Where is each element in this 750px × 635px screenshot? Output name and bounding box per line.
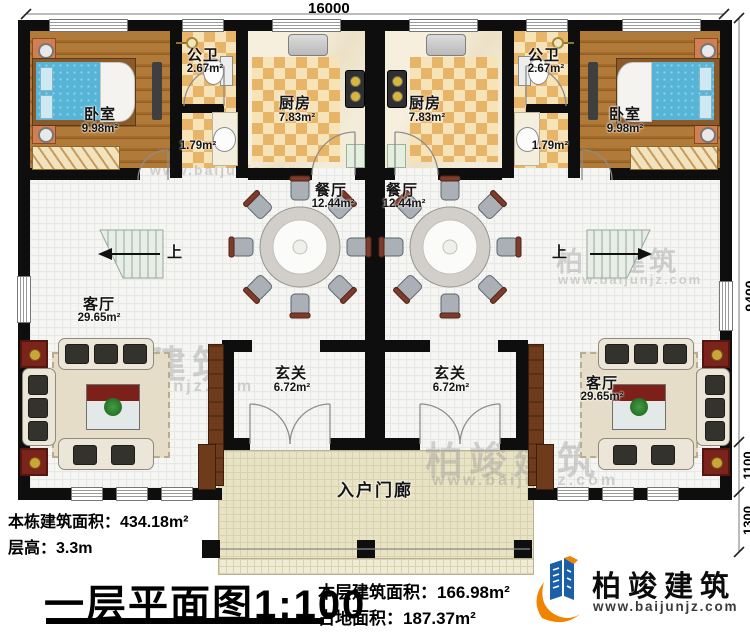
sofa [696,368,730,446]
window [183,20,223,31]
room-label-dining: 餐厅 [386,183,418,198]
room-area-bedroom: 9.98m² [82,124,118,136]
nightstand [32,38,56,60]
wall [170,31,182,178]
lamp-icon [38,127,54,143]
land-area-label: 占地面积： [318,609,403,628]
brand-logo-icon [530,556,588,626]
pillow [699,95,712,119]
room-label-foyer: 玄关 [434,366,466,381]
window [273,20,340,31]
wall [385,340,430,352]
plant-icon [29,457,41,469]
wall [516,340,528,450]
window [720,282,732,330]
lamp-icon [700,127,716,143]
window [410,20,477,31]
fridge [346,144,365,168]
porch-label: 入户门廊 [337,482,413,499]
land-area-line: 占地面积：187.37m² [318,604,476,629]
coffee-table [86,384,140,430]
wall [330,438,420,450]
porch-floor [218,450,534,560]
room-label-living: 客厅 [83,297,115,312]
lamp-icon [700,43,716,59]
side-table [702,448,730,476]
lamp-icon [38,43,54,59]
dimension-right-depth: 9400 [742,274,750,318]
floor-plan-page: 柏竣建筑 www.baijunjz.com 柏竣建筑 www.baijunjz.… [0,0,750,635]
plant-icon [711,349,723,361]
fridge [387,144,406,168]
room-area-foyer: 6.72m² [433,383,469,395]
room-label-bath: 公卫 [187,48,219,63]
window [623,20,700,31]
sofa [58,438,154,470]
room-area-bath: 2.67m² [187,64,223,76]
window [527,20,567,31]
window [117,488,147,500]
porch-column [357,540,375,558]
kitchen-sink [288,34,328,56]
room-label-bath: 公卫 [528,48,560,63]
room-label-bedroom: 卧室 [84,107,116,122]
dimension-right-foyer: 1100 [741,446,750,486]
room-area-wash: 1.79m² [180,141,216,153]
sofa [598,338,694,370]
room-label-dining: 餐厅 [315,183,347,198]
wall [502,31,514,178]
side-table [20,448,48,476]
room-area-bedroom: 9.98m² [607,124,643,136]
stairs-up-label: 上 [167,245,183,260]
building-area-label: 本栋建筑面积： [8,514,120,531]
window [603,488,633,500]
room-area-bath: 2.67m² [528,64,564,76]
room-area-dining: 12.44m² [312,199,355,211]
pillow [699,67,712,91]
land-area-value: 187.37m² [403,609,476,628]
stove [345,70,365,108]
dimension-right-porch: 1300 [741,501,750,541]
window [18,277,30,322]
room-label-foyer: 玄关 [275,366,307,381]
floor-height-label: 层高： [8,540,56,557]
window [72,488,102,500]
wardrobe [630,146,718,170]
room-label-kitchen: 厨房 [409,96,441,111]
pillow [40,67,53,91]
side-table [702,340,730,368]
kitchen-sink [426,34,466,56]
plant-icon [104,398,122,416]
side-table [20,340,48,368]
floor-height-line: 层高：3.3m [8,534,92,558]
wall [320,340,365,352]
window [50,20,127,31]
stove [387,70,407,108]
sofa [598,438,694,470]
floor-area-line: 本层建筑面积：166.98m² [318,578,510,603]
porch-column [202,540,220,558]
room-area-kitchen: 7.83m² [409,113,445,125]
side-door-panel [536,444,554,490]
wall [385,168,395,180]
title-underline [46,618,324,624]
floor-height-value: 3.3m [56,540,92,557]
nightstand [694,38,718,60]
wall-central [365,20,385,450]
porch-column [514,540,532,558]
plant-icon [29,349,41,361]
room-label-bedroom: 卧室 [609,107,641,122]
window [162,488,192,500]
window [648,488,678,500]
floor-area-label: 本层建筑面积： [318,583,437,602]
wall [568,31,580,178]
room-label-living: 客厅 [586,376,618,391]
sofa [58,338,154,370]
tv-panel [152,62,162,120]
room-area-foyer: 6.72m² [274,383,310,395]
room-label-kitchen: 厨房 [279,96,311,111]
tv-panel [588,62,598,120]
room-area-kitchen: 7.83m² [279,113,315,125]
room-area-dining: 12.44m² [383,199,426,211]
sofa [22,368,56,446]
stairs-up-label: 上 [552,245,568,260]
floor-area-value: 166.98m² [437,583,510,602]
building-area-value: 434.18m² [120,514,189,531]
pillow [40,95,53,119]
plant-icon [630,398,648,416]
wall [248,168,312,180]
room-area-living: 29.65m² [581,392,624,404]
window [558,488,588,500]
wall [438,168,502,180]
wall [355,168,365,180]
dimension-top: 16000 [308,0,350,17]
building-area-line: 本栋建筑面积：434.18m² [8,508,189,532]
wardrobe [32,146,120,170]
brand-website: www.baijunjz.com [593,599,738,614]
room-area-wash: 1.79m² [532,141,568,153]
wash-basin [213,127,236,152]
side-door-panel [198,444,216,490]
room-area-living: 29.65m² [78,313,121,325]
plant-icon [711,457,723,469]
